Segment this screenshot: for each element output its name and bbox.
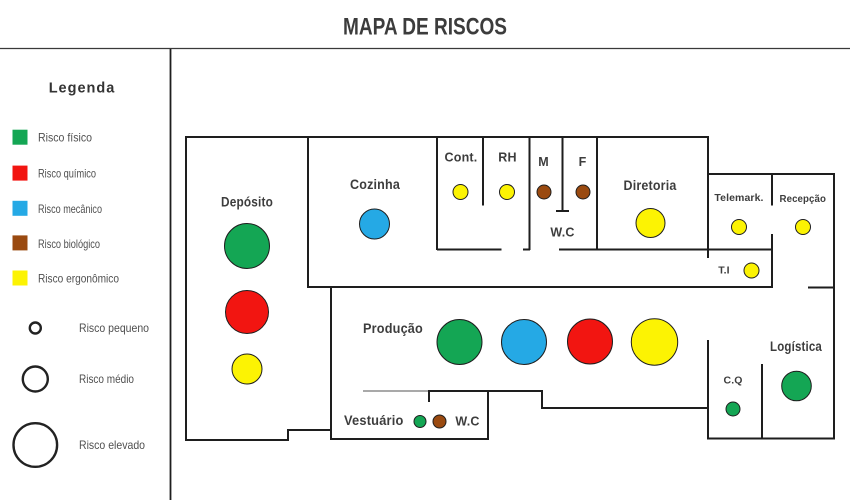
svg-text:W.C: W.C	[550, 226, 574, 240]
svg-text:Cozinha: Cozinha	[350, 177, 400, 192]
svg-text:Risco elevado: Risco elevado	[79, 438, 145, 452]
svg-text:Risco ergonômico: Risco ergonômico	[38, 272, 119, 286]
svg-text:Diretoria: Diretoria	[624, 178, 677, 193]
svg-text:C.Q: C.Q	[724, 375, 743, 387]
svg-text:Risco físico: Risco físico	[38, 131, 92, 145]
svg-text:M: M	[538, 155, 549, 169]
svg-text:Cont.: Cont.	[445, 151, 478, 165]
svg-text:T.I: T.I	[718, 265, 729, 277]
svg-text:Risco mecânico: Risco mecânico	[38, 202, 102, 216]
svg-text:Logística: Logística	[770, 339, 822, 354]
svg-text:Risco químico: Risco químico	[38, 167, 96, 181]
svg-text:W.C: W.C	[455, 415, 479, 429]
svg-text:Risco pequeno: Risco pequeno	[79, 321, 149, 335]
svg-text:Legenda: Legenda	[49, 81, 116, 97]
svg-text:Recepção: Recepção	[780, 193, 827, 205]
svg-text:Risco médio: Risco médio	[79, 372, 134, 386]
svg-text:F: F	[579, 155, 587, 169]
svg-text:MAPA DE RISCOS: MAPA DE RISCOS	[343, 14, 507, 41]
svg-text:Telemark.: Telemark.	[714, 192, 763, 204]
svg-text:RH: RH	[498, 151, 516, 165]
svg-text:Produção: Produção	[363, 321, 423, 336]
svg-text:Depósito: Depósito	[221, 195, 273, 210]
svg-text:Vestuário: Vestuário	[344, 413, 404, 428]
svg-text:Risco biológico: Risco biológico	[38, 237, 100, 251]
